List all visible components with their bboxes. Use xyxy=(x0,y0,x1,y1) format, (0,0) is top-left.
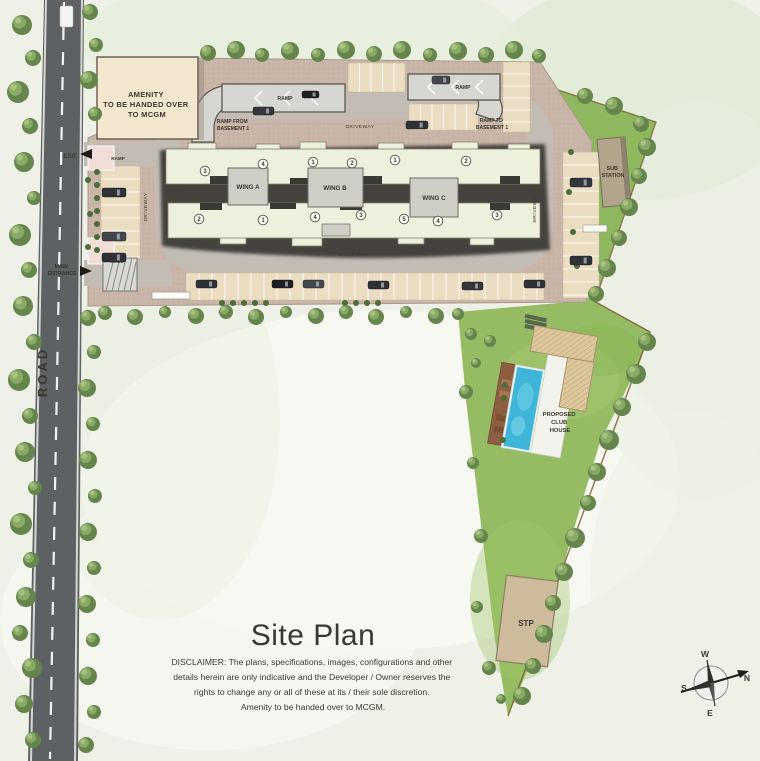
tree xyxy=(337,41,355,59)
bush xyxy=(85,177,91,183)
wing-b-label: WING B xyxy=(323,185,347,192)
tree xyxy=(588,286,604,302)
tree xyxy=(80,310,96,326)
tree xyxy=(22,658,42,678)
tree xyxy=(25,50,41,66)
bush xyxy=(94,169,100,175)
tree xyxy=(9,224,31,246)
tree xyxy=(459,385,473,399)
tree xyxy=(25,732,41,748)
car xyxy=(253,107,274,115)
compass-e: E xyxy=(707,708,713,718)
tree xyxy=(79,523,97,541)
name-board xyxy=(152,292,190,299)
bush xyxy=(263,300,269,306)
tree xyxy=(525,658,541,674)
bush xyxy=(94,221,100,227)
unit-number-marker: 3 xyxy=(492,210,502,220)
unit-number-marker: 2 xyxy=(461,156,471,166)
road-label: ROAD xyxy=(35,347,50,397)
tree xyxy=(22,408,38,424)
tree xyxy=(78,737,94,753)
tree xyxy=(22,118,38,134)
tree xyxy=(88,107,102,121)
tree xyxy=(513,687,531,705)
bush xyxy=(252,300,258,306)
unit-number-marker: 2 xyxy=(347,158,357,168)
tree xyxy=(577,88,593,104)
tree xyxy=(28,481,42,495)
bush xyxy=(570,229,576,235)
tree xyxy=(79,451,97,469)
tree xyxy=(188,308,204,324)
bush xyxy=(94,247,100,253)
tree xyxy=(8,369,30,391)
amenity-block: AMENITY TO BE HANDED OVER TO MCGM xyxy=(97,57,204,140)
wing-a-label: WING A xyxy=(236,184,260,191)
tree xyxy=(227,41,245,59)
tree xyxy=(27,191,41,205)
compass-n: N xyxy=(744,673,750,683)
parking-stalls xyxy=(503,62,530,132)
sub-station-sign xyxy=(583,225,607,232)
tree xyxy=(611,230,627,246)
compass-w: W xyxy=(701,649,710,659)
tree xyxy=(449,42,467,60)
tree xyxy=(98,306,112,320)
tree xyxy=(565,528,585,548)
tree xyxy=(423,48,437,62)
tree xyxy=(545,595,561,611)
car xyxy=(368,281,389,289)
bush xyxy=(94,234,100,240)
tree xyxy=(631,168,647,184)
bush xyxy=(94,208,100,214)
tree xyxy=(21,262,37,278)
tree xyxy=(255,48,269,62)
tree xyxy=(478,47,494,63)
tree xyxy=(87,345,101,359)
tree xyxy=(127,309,143,325)
tree xyxy=(23,552,39,568)
bush xyxy=(85,244,91,250)
tree xyxy=(474,529,488,543)
tree xyxy=(471,358,481,368)
tree xyxy=(88,489,102,503)
tree xyxy=(13,296,33,316)
car xyxy=(524,280,545,288)
unit-number-marker: 1 xyxy=(308,157,318,167)
unit-number-marker: 4 xyxy=(310,212,320,222)
parking-stalls xyxy=(348,63,405,92)
ramp1-label: RAMP xyxy=(277,96,293,102)
tree xyxy=(86,633,100,647)
tree xyxy=(12,625,28,641)
tree xyxy=(484,335,496,347)
stp: STP xyxy=(496,575,558,667)
unit-number-marker: 1 xyxy=(390,155,400,165)
car xyxy=(196,280,217,288)
tree xyxy=(159,306,171,318)
car xyxy=(272,280,293,288)
tree xyxy=(638,138,656,156)
tree xyxy=(638,333,656,351)
tree xyxy=(452,308,464,320)
car xyxy=(303,280,324,288)
compass-s: S xyxy=(681,683,687,693)
tree xyxy=(366,46,382,62)
tree xyxy=(400,306,412,318)
bush xyxy=(375,300,381,306)
driveway-bottom-label: DRIVEWAY xyxy=(338,252,367,258)
tree xyxy=(248,309,264,325)
driveway-top-label: DRIVEWAY xyxy=(345,124,374,130)
ramp-small-top-label: RAMP xyxy=(111,156,125,161)
tree xyxy=(467,457,479,469)
bush xyxy=(364,300,370,306)
tree xyxy=(482,661,496,675)
tree xyxy=(535,625,553,643)
tree xyxy=(10,513,32,535)
car xyxy=(570,178,592,187)
unit-number-marker: 4 xyxy=(258,159,268,169)
tree xyxy=(496,694,506,704)
tree xyxy=(15,695,33,713)
bush xyxy=(500,437,506,443)
exit-label: EXIT xyxy=(63,154,77,160)
stp-label: STP xyxy=(518,619,534,628)
tree xyxy=(200,45,216,61)
bush xyxy=(87,211,93,217)
car xyxy=(102,253,126,262)
tree xyxy=(78,595,96,613)
tree xyxy=(588,463,606,481)
car xyxy=(102,188,126,197)
tree xyxy=(308,308,324,324)
road-vehicle xyxy=(60,6,73,27)
tree xyxy=(532,49,546,63)
bush xyxy=(566,189,572,195)
tree xyxy=(80,71,98,89)
ramp-to-basement-label: RAMP TO BASEMENT 1 xyxy=(476,118,508,131)
bush xyxy=(353,300,359,306)
bush xyxy=(568,149,574,155)
unit-number-marker: 2 xyxy=(194,214,204,224)
car xyxy=(102,232,126,241)
car xyxy=(432,76,450,84)
driveway-left-label: DRIVEWAY xyxy=(143,192,149,221)
sub-station: SUB STATION xyxy=(597,137,631,207)
tree xyxy=(87,705,101,719)
tree xyxy=(598,259,616,277)
tree xyxy=(311,48,325,62)
site-plan-svg: ROAD xyxy=(0,0,760,761)
unit-number-marker: 1 xyxy=(258,215,268,225)
bush xyxy=(501,395,507,401)
tree xyxy=(15,442,35,462)
tree xyxy=(620,198,638,216)
tree xyxy=(281,42,299,60)
unit-number-marker: 4 xyxy=(433,216,443,226)
wing-c-label: WING C xyxy=(422,195,446,202)
tree xyxy=(633,116,649,132)
tree xyxy=(428,308,444,324)
tree xyxy=(280,306,292,318)
tree xyxy=(613,398,631,416)
tree xyxy=(26,334,42,350)
tree xyxy=(12,15,32,35)
tree xyxy=(368,309,384,325)
tree xyxy=(16,587,36,607)
tree xyxy=(505,41,523,59)
bush xyxy=(94,182,100,188)
tree xyxy=(393,41,411,59)
tree xyxy=(219,305,233,319)
tree xyxy=(471,601,483,613)
tree xyxy=(465,328,477,340)
tree xyxy=(78,379,96,397)
tree xyxy=(555,563,573,581)
tree xyxy=(86,417,100,431)
tree xyxy=(79,667,97,685)
car xyxy=(570,256,592,265)
unit-number-marker: 3 xyxy=(200,166,210,176)
bush xyxy=(241,300,247,306)
bush xyxy=(230,300,236,306)
page-title: Site Plan xyxy=(251,619,376,652)
ramp2-label: RAMP xyxy=(455,85,471,91)
tree xyxy=(89,38,103,52)
car xyxy=(462,282,483,290)
ramp-from-basement-label: RAMP FROM BASEMENT 1 xyxy=(217,119,249,132)
driveway-right-label: DRIVEWAY xyxy=(532,193,538,222)
parking-stalls xyxy=(186,273,544,300)
tree xyxy=(599,430,619,450)
tree xyxy=(605,97,623,115)
unit-number-marker: 5 xyxy=(399,214,409,224)
car xyxy=(406,121,428,129)
tree xyxy=(7,81,29,103)
tree xyxy=(626,364,646,384)
tree xyxy=(580,495,596,511)
tree xyxy=(87,561,101,575)
tree xyxy=(14,152,34,172)
site-plan-image: ROAD xyxy=(0,0,760,761)
bush xyxy=(502,382,508,388)
tree xyxy=(82,4,98,20)
bush xyxy=(94,195,100,201)
car xyxy=(302,91,319,98)
bush xyxy=(219,300,225,306)
tree xyxy=(339,305,353,319)
unit-number-marker: 3 xyxy=(356,210,366,220)
